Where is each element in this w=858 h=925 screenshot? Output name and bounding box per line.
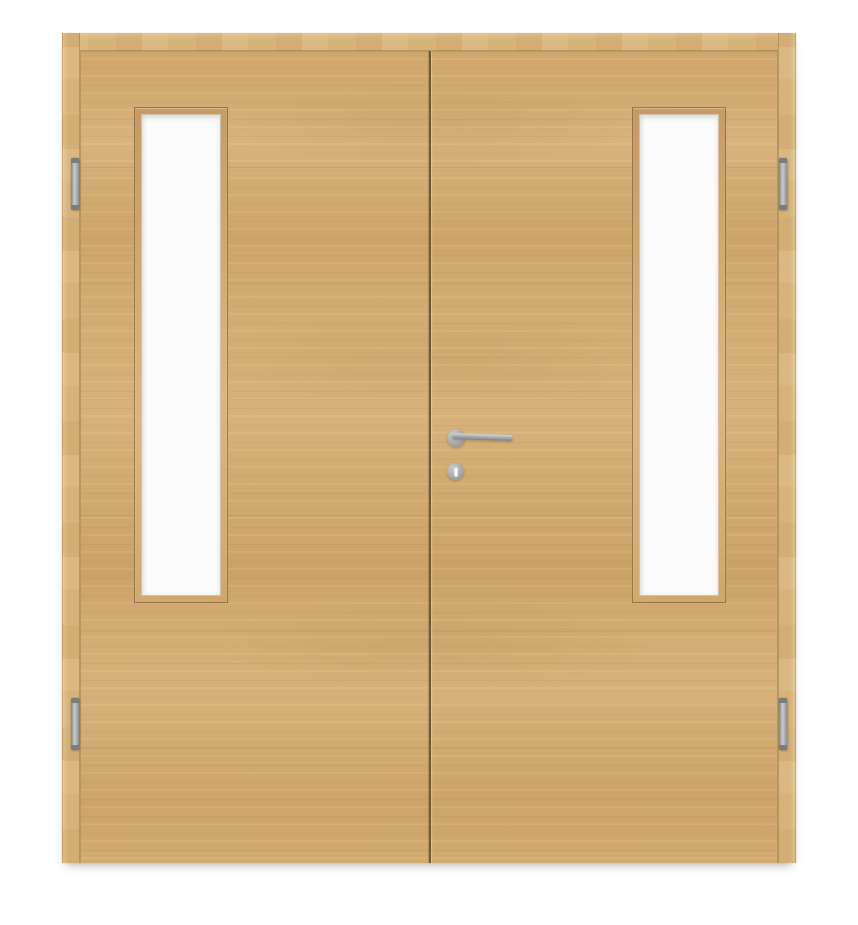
leaf-meeting-gap <box>429 51 431 863</box>
glazing-bead-right <box>632 107 726 603</box>
hinge-right-top <box>779 158 787 210</box>
hinge-left-top <box>71 158 79 210</box>
door-leaf-right <box>431 51 778 863</box>
door-leaf-left <box>80 51 429 863</box>
hinge-left-bottom <box>71 698 79 750</box>
hinge-right-bottom <box>779 698 787 750</box>
keyhole-escutcheon <box>447 463 464 480</box>
double-door-assembly <box>62 33 796 863</box>
glazing-bead-left <box>134 107 228 603</box>
product-photo-canvas <box>0 0 858 925</box>
glass-lite-left <box>141 114 221 596</box>
door-frame-head <box>62 33 796 51</box>
keyhole-slot-icon <box>454 467 458 477</box>
glass-lite-right <box>639 114 719 596</box>
